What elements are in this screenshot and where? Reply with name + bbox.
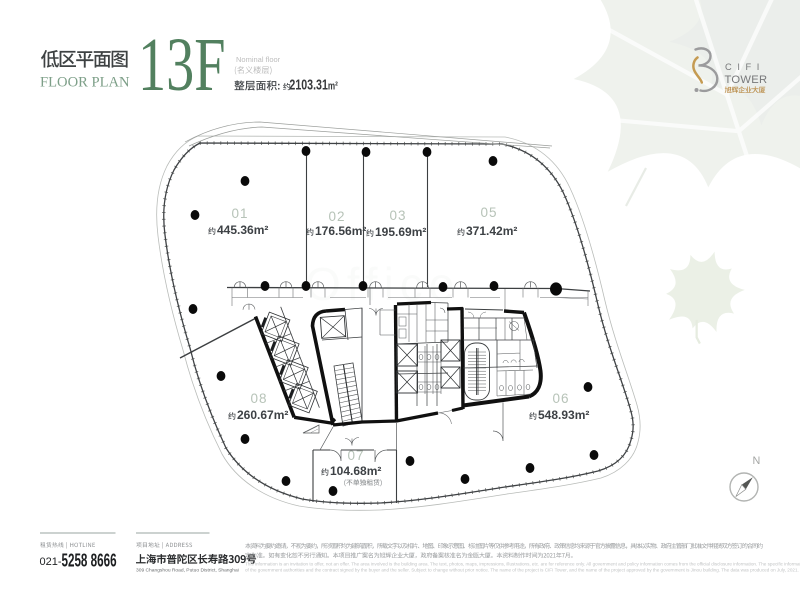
svg-text:TOWER: TOWER [725, 74, 768, 86]
svg-text:N: N [753, 455, 761, 467]
svg-text:021-: 021- [40, 556, 62, 568]
svg-text:This information is an invitat: This information is an invitation to off… [245, 562, 800, 567]
svg-text:13F: 13F [138, 23, 226, 107]
svg-text:07: 07 [347, 448, 364, 463]
svg-text:548.93m²: 548.93m² [538, 408, 589, 422]
svg-text:195.69m²: 195.69m² [375, 225, 426, 239]
svg-text:Office: Office [305, 258, 460, 310]
svg-text:5258 8666: 5258 8666 [62, 551, 117, 571]
svg-text:02: 02 [328, 209, 345, 224]
svg-text:309 Changshou Road, Putuo Dist: 309 Changshou Road, Putuo District, Shan… [136, 568, 239, 574]
svg-text:Nominal floor: Nominal floor [236, 55, 281, 64]
svg-text:05: 05 [480, 205, 497, 220]
svg-text:08: 08 [250, 391, 267, 406]
svg-text:FLOOR PLAN: FLOOR PLAN [40, 75, 130, 91]
svg-text:104.68m²: 104.68m² [330, 464, 381, 478]
svg-text:260.67m²: 260.67m² [237, 408, 288, 422]
svg-text:01: 01 [231, 206, 248, 221]
svg-text:176.56m²: 176.56m² [315, 224, 366, 238]
svg-text:06: 06 [552, 391, 569, 406]
svg-text:CIFI: CIFI [725, 62, 765, 72]
svg-text:of the government authorities: of the government authorities and the co… [245, 568, 799, 573]
svg-text:371.42m²: 371.42m² [466, 224, 517, 238]
svg-text:445.36m²: 445.36m² [217, 223, 268, 237]
svg-text:03: 03 [389, 208, 406, 223]
